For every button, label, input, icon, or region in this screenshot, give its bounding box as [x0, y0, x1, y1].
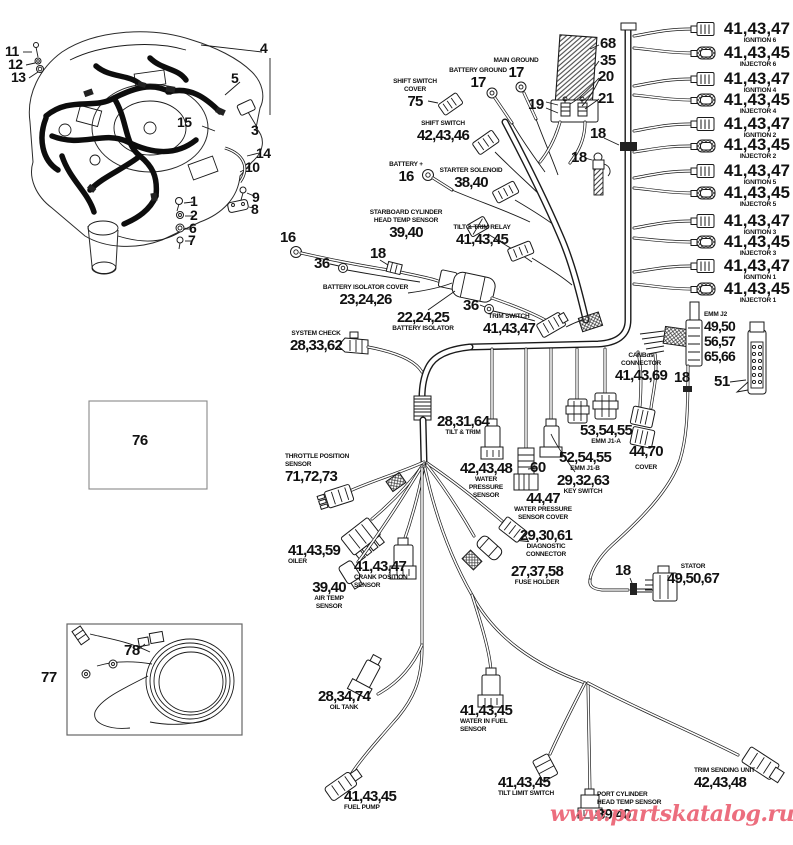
- reference-box-76: [89, 401, 207, 489]
- label-main-ground: MAIN GROUND17: [478, 57, 554, 80]
- emm-j1b-connector-icon: [566, 399, 589, 423]
- retainer-icon: [237, 99, 256, 116]
- callout-18-canbus: 18: [674, 370, 690, 385]
- callout-8: 8: [251, 202, 258, 216]
- hose-icon: [225, 148, 245, 182]
- tape-wrap-icon: [462, 550, 482, 570]
- ring-terminal-icon: [82, 670, 90, 678]
- callout-36-a: 36: [314, 256, 330, 271]
- callout-35: 35: [600, 53, 616, 68]
- label-starboard-head-temp: STARBOARD CYLINDER HEAD TEMP SENSOR39,40: [366, 209, 446, 240]
- label-crank-position: 41,43,47CRANK POSITION SENSOR: [354, 559, 429, 590]
- label-starter-solenoid: STARTER SOLENOID38,40: [433, 167, 509, 190]
- callout-ignition-6: 41,43,47IGNITION 6: [640, 20, 790, 45]
- label-emm-j1b: 52,54,55EMM J1-B: [553, 450, 617, 473]
- label-fuel-pump: 41,43,45FUEL PUMP: [344, 789, 414, 812]
- callout-76: 76: [132, 433, 148, 448]
- label-water-in-fuel: 41,43,45WATER IN FUEL SENSOR: [460, 703, 535, 734]
- label-shift-switch: SHIFT SWITCH42,43,46: [404, 120, 482, 143]
- callout-10: 10: [245, 160, 260, 174]
- callout-15: 15: [177, 115, 192, 129]
- clamp-18-icon: [630, 583, 637, 595]
- ring-terminal-16-icon: [291, 247, 302, 258]
- callout-18-stator: 18: [615, 563, 631, 578]
- screw-icon: [34, 43, 39, 58]
- parts-diagram-page: { "watermark": "www.partskatalog.ru", "c…: [0, 0, 793, 845]
- callout-20: 20: [598, 69, 614, 84]
- label-canbus-connector: CANBus CONNECTOR41,43,69: [607, 352, 675, 383]
- fuse-holder-icon: [475, 534, 504, 562]
- label-stator: STATOR49,50,67: [660, 563, 726, 586]
- sensor-18-icon: [593, 153, 610, 195]
- center-trunk: [338, 332, 470, 462]
- callout-51: 51: [714, 374, 730, 389]
- callout-68: 68: [600, 36, 616, 51]
- clamp-18-icon: [683, 386, 692, 392]
- callout-18-isolator: 18: [370, 246, 386, 261]
- nut-icon: [37, 66, 44, 73]
- callout-7: 7: [188, 233, 195, 247]
- clamp-18-icon: [386, 261, 402, 274]
- callout-injector-3: 41,43,45INJECTOR 3: [640, 233, 790, 258]
- callout-60: 60: [530, 460, 546, 475]
- callout-injector-5: 41,43,45INJECTOR 5: [640, 184, 790, 209]
- ring-terminal-icon: [109, 660, 117, 668]
- label-emm-j2: EMM J249,50 56,57 65,66: [704, 311, 752, 364]
- label-tilt-limit-switch: 41,43,45TILT LIMIT SWITCH: [498, 775, 573, 798]
- label-shift-switch-cover: SHIFT SWITCH COVER75: [383, 78, 447, 109]
- callout-77: 77: [41, 670, 57, 685]
- callout-14: 14: [256, 146, 271, 160]
- callout-21: 21: [598, 91, 614, 106]
- callout-18-sensor: 18: [571, 150, 587, 165]
- callout-3: 3: [251, 123, 258, 137]
- callout-1: 1: [190, 194, 197, 208]
- callout-5: 5: [231, 71, 238, 85]
- label-battery-isolator: 22,24,25BATTERY ISOLATOR: [382, 310, 464, 333]
- engine-assembly-drawing: [23, 32, 270, 274]
- label-cover: 44,70COVER: [618, 444, 674, 472]
- callout-18-trunk: 18: [590, 126, 606, 141]
- callout-4: 4: [260, 41, 267, 55]
- callout-injector-4: 41,43,45INJECTOR 4: [640, 91, 790, 116]
- cable-kit-box-77: [67, 624, 242, 735]
- label-diagnostic-connector: 29,30,61DIAGNOSTIC CONNECTOR: [508, 528, 584, 559]
- label-water-pressure-cover: 44,47WATER PRESSURE SENSOR COVER: [503, 491, 583, 522]
- label-tilt-trim: 28,31,64TILT & TRIM: [430, 414, 496, 437]
- washer-icon: [177, 212, 184, 219]
- clamp-18-icon: [620, 142, 637, 151]
- callout-36-b: 36: [463, 298, 479, 313]
- label-trim-switch: TRIM SWITCH41,43,47: [474, 313, 544, 336]
- j2-boot-icon: [663, 326, 688, 346]
- nut-icon: [176, 224, 184, 232]
- emm-j1a-connector-icon: [593, 393, 618, 419]
- throttle-connector-icon: [317, 484, 355, 511]
- callout-injector-6: 41,43,45INJECTOR 6: [640, 44, 790, 69]
- callout-16-isolator: 16: [280, 230, 296, 245]
- label-throttle-position: THROTTLE POSITION SENSOR71,72,73: [285, 453, 365, 484]
- emm-j2-connector-icon: [686, 320, 702, 366]
- callout-injector-1: 41,43,45INJECTOR 1: [640, 280, 790, 305]
- label-fuse-holder: 27,37,58FUSE HOLDER: [502, 564, 572, 587]
- label-tilt-trim-relay: TILT & TRIM RELAY41,43,45: [446, 224, 518, 247]
- ring-terminal-36-icon: [339, 264, 348, 273]
- label-battery-plus: BATTERY +16: [381, 161, 431, 184]
- watermark: www.partskatalog.ru: [550, 801, 793, 827]
- label-oil-tank: 28,34,74OIL TANK: [310, 689, 378, 712]
- washer-icon: [35, 58, 41, 64]
- screw-icon: [240, 187, 246, 200]
- callout-78: 78: [124, 643, 140, 658]
- bolt-icon: [177, 237, 183, 249]
- callout-19: 19: [528, 97, 544, 112]
- label-system-check: SYSTEM CHECK28,33,62: [282, 330, 350, 353]
- label-oiler: 41,43,59OILER: [288, 543, 358, 566]
- label-battery-isolator-cover: BATTERY ISOLATOR COVER23,24,26: [318, 284, 413, 307]
- label-trim-sending-unit: TRIM SENDING UNIT42,43,48: [694, 767, 762, 790]
- callout-13: 13: [11, 70, 26, 84]
- main-ground-ring-icon: [516, 82, 526, 92]
- callout-injector-2: 41,43,45INJECTOR 2: [640, 136, 790, 161]
- label-air-temp: 39,40AIR TEMP SENSOR: [303, 580, 355, 611]
- bolt-icon: [176, 198, 183, 212]
